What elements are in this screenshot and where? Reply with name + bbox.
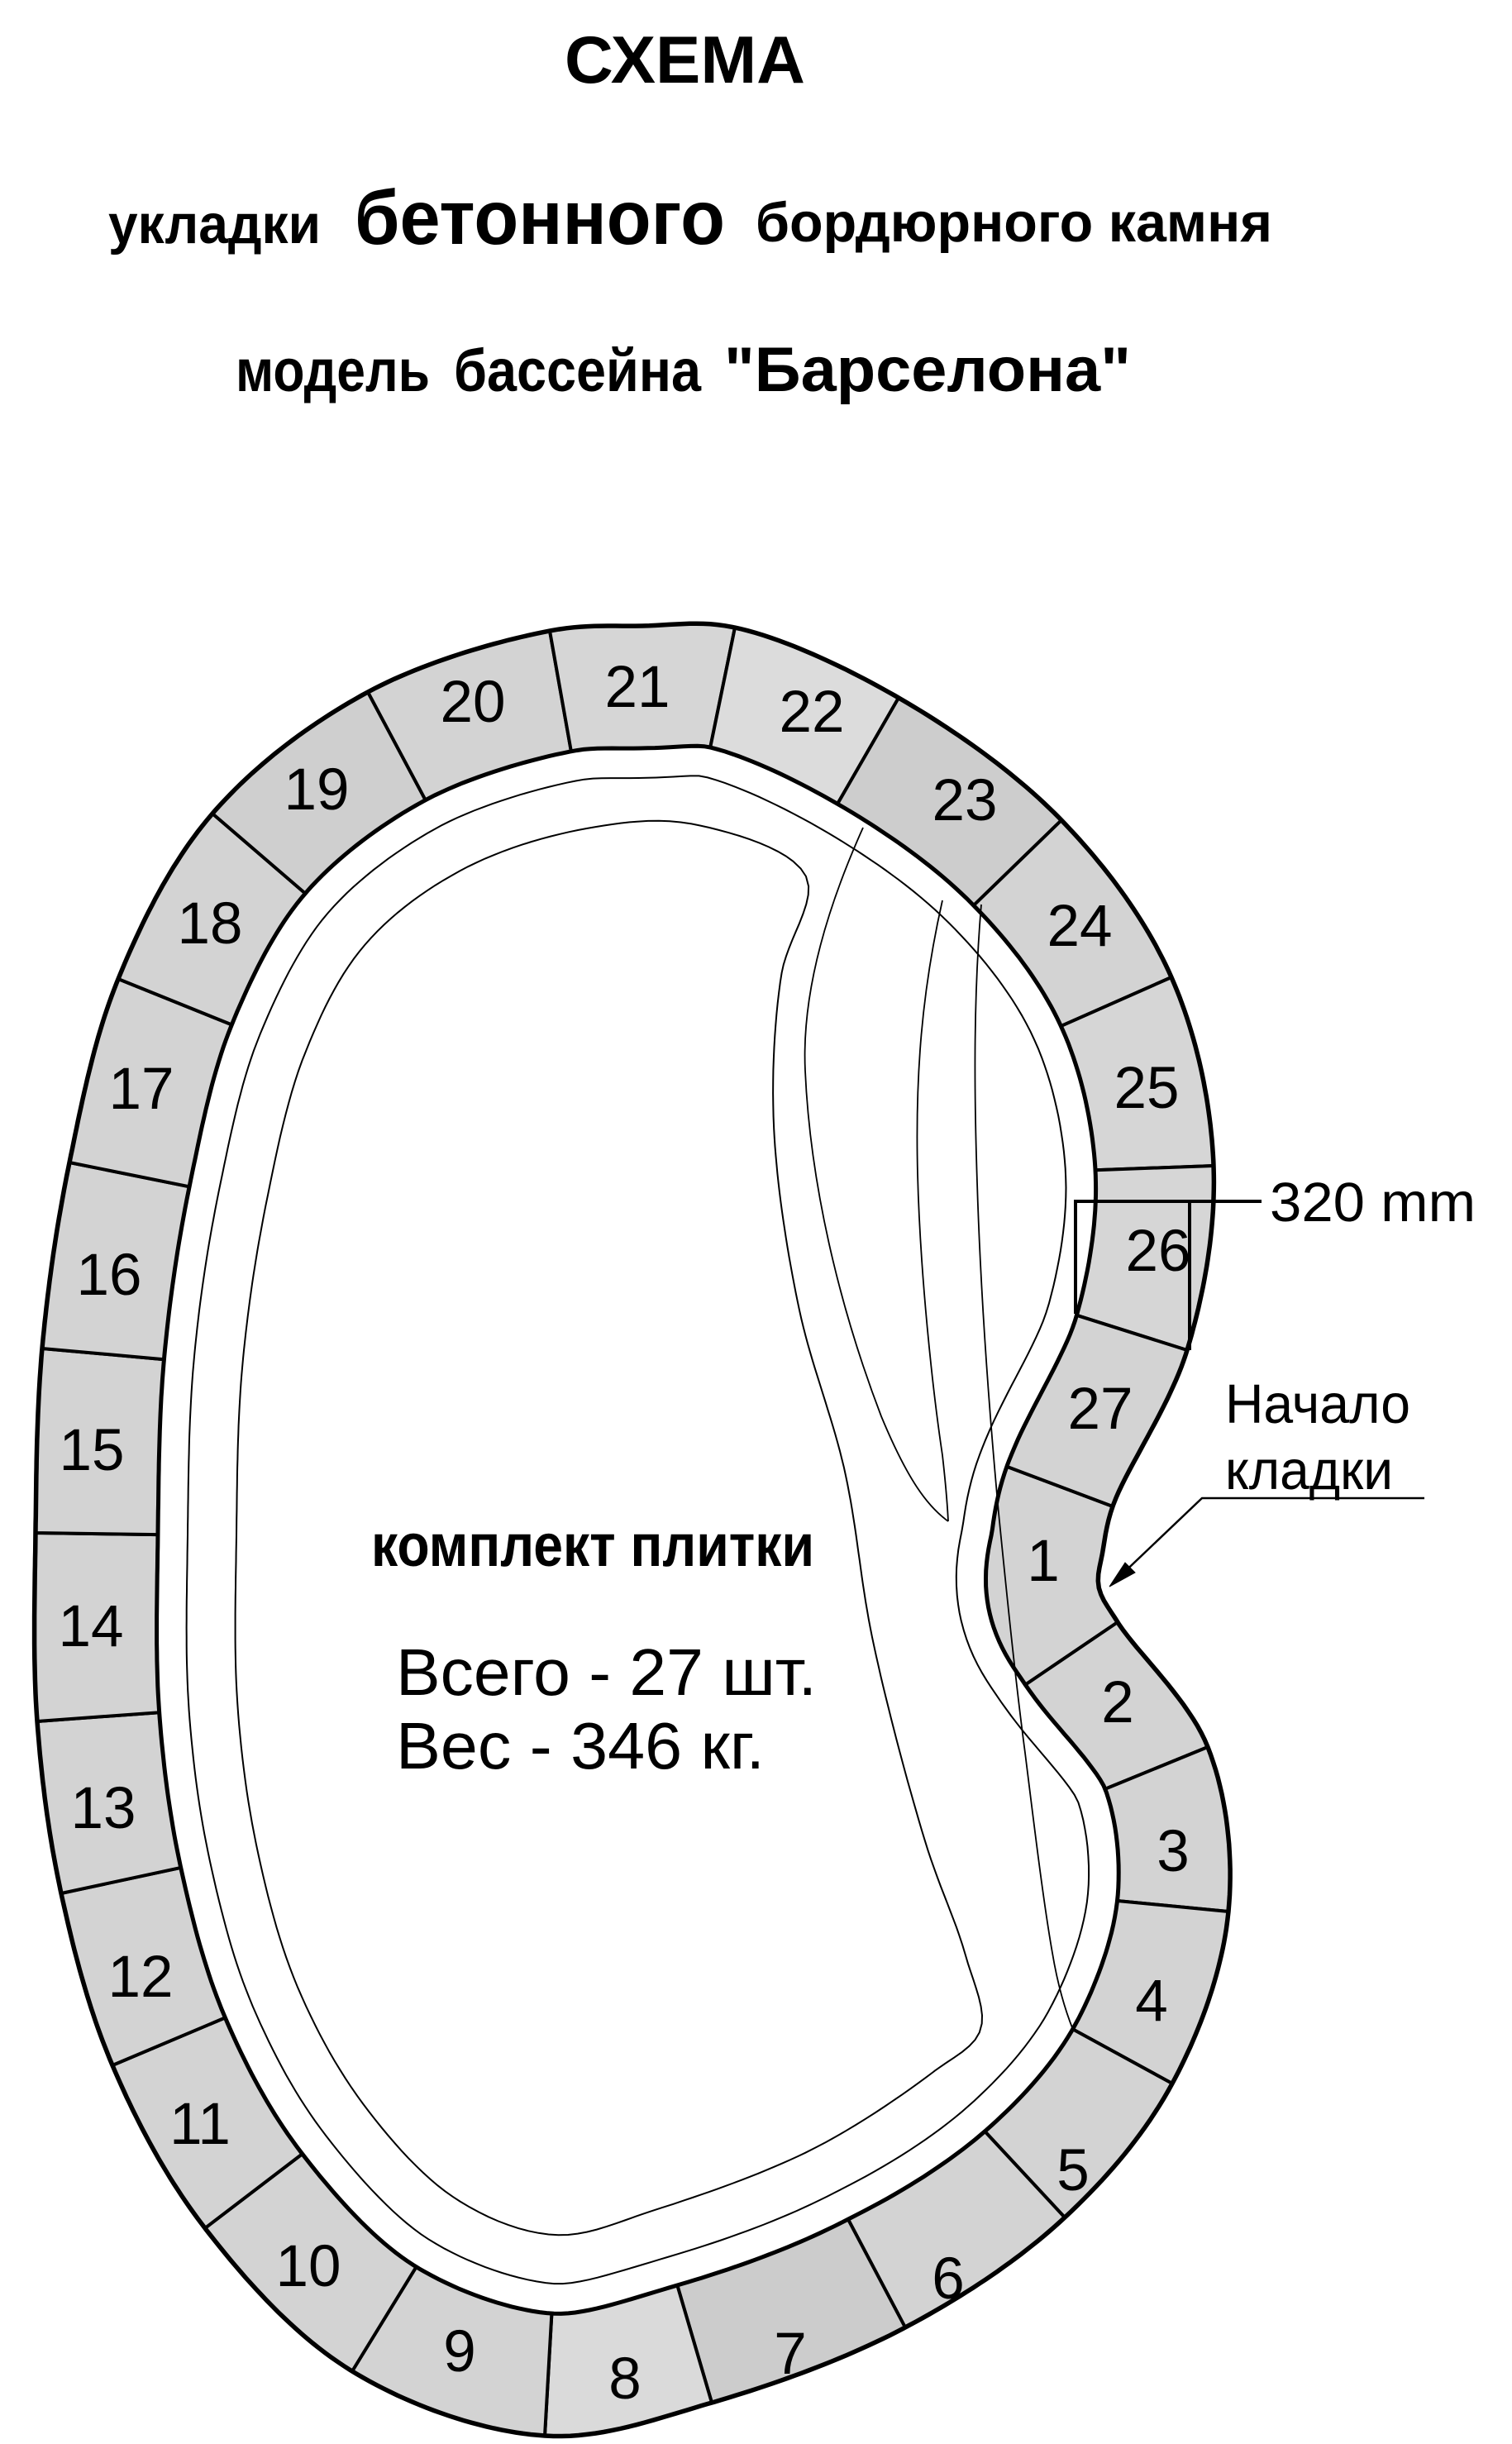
- svg-text:комплект плитки: комплект плитки: [371, 1513, 814, 1579]
- svg-text:бассейна: бассейна: [454, 338, 702, 404]
- svg-text:укладки: укладки: [108, 193, 321, 255]
- svg-text:11: 11: [169, 2092, 231, 2157]
- svg-text:бордюрного камня: бордюрного камня: [756, 192, 1272, 254]
- svg-text:13: 13: [71, 1776, 136, 1841]
- svg-text:23: 23: [932, 768, 998, 833]
- svg-text:Всего - 27 шт.: Всего - 27 шт.: [396, 1635, 817, 1709]
- svg-text:21: 21: [605, 655, 670, 720]
- svg-text:25: 25: [1114, 1056, 1180, 1121]
- svg-text:24: 24: [1047, 894, 1113, 959]
- svg-text:14: 14: [59, 1594, 124, 1659]
- svg-text:27: 27: [1068, 1377, 1133, 1442]
- svg-text:17: 17: [109, 1057, 174, 1122]
- svg-text:8: 8: [608, 2346, 642, 2412]
- svg-text:22: 22: [780, 680, 845, 745]
- svg-text:2: 2: [1101, 1670, 1134, 1735]
- svg-text:9: 9: [443, 2319, 476, 2384]
- svg-text:"Барселона": "Барселона": [724, 335, 1131, 405]
- svg-text:320 mm: 320 mm: [1270, 1172, 1476, 1234]
- svg-text:19: 19: [284, 757, 350, 823]
- svg-text:10: 10: [276, 2234, 341, 2299]
- svg-text:6: 6: [932, 2246, 965, 2312]
- svg-text:5: 5: [1056, 2138, 1090, 2203]
- svg-text:18: 18: [178, 891, 243, 957]
- svg-text:16: 16: [77, 1243, 142, 1308]
- svg-text:4: 4: [1135, 1969, 1168, 2034]
- svg-text:Начало: Начало: [1225, 1373, 1410, 1435]
- svg-text:26: 26: [1126, 1219, 1191, 1284]
- svg-text:3: 3: [1157, 1819, 1190, 1884]
- svg-text:бетонного: бетонного: [355, 174, 725, 260]
- svg-text:7: 7: [774, 2322, 807, 2387]
- svg-text:Вес - 346 кг.: Вес - 346 кг.: [396, 1709, 765, 1783]
- svg-text:1: 1: [1027, 1529, 1060, 1594]
- svg-text:15: 15: [60, 1418, 125, 1483]
- svg-text:кладки: кладки: [1225, 1439, 1393, 1501]
- svg-text:СХЕМА: СХЕМА: [565, 23, 805, 98]
- svg-text:12: 12: [108, 1945, 174, 2010]
- svg-text:20: 20: [441, 670, 506, 735]
- svg-text:модель: модель: [236, 338, 430, 404]
